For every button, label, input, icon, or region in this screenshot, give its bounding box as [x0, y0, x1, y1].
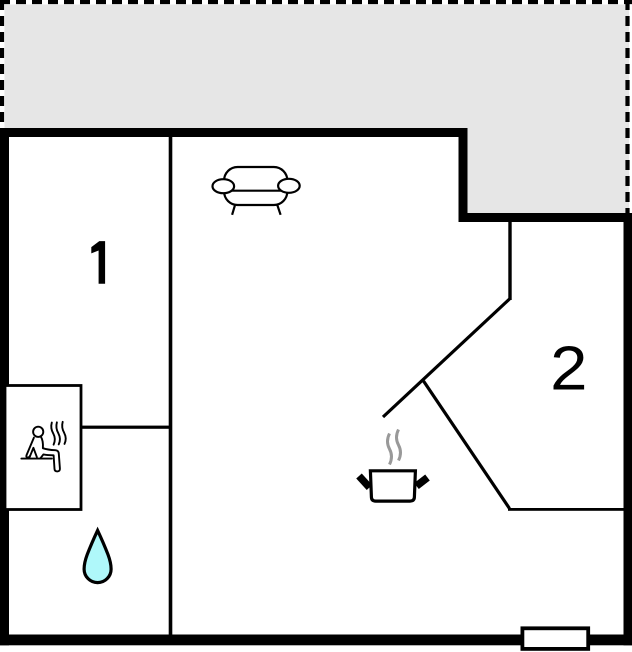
svg-text:2: 2: [550, 333, 587, 403]
